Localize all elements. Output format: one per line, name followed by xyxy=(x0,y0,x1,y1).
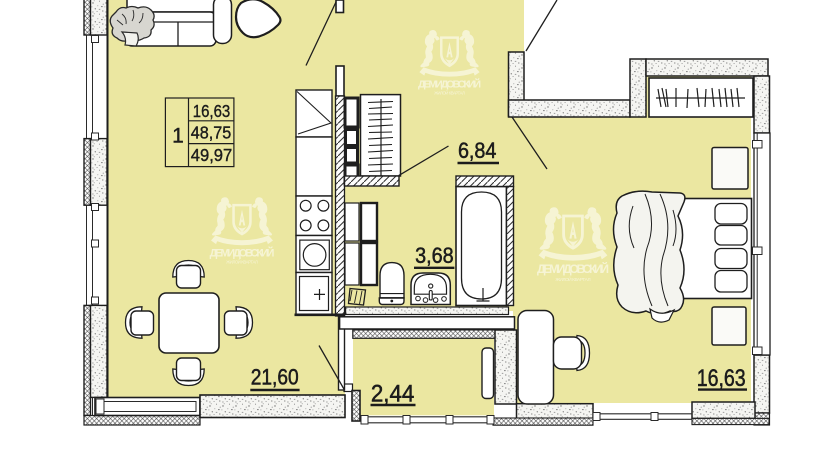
svg-text:ДЕМИДОВСКИЙ: ДЕМИДОВСКИЙ xyxy=(210,246,275,259)
svg-text:6,84: 6,84 xyxy=(458,138,497,163)
svg-text:16,63: 16,63 xyxy=(193,101,231,121)
svg-text:ДЕМИДОВСКИЙ: ДЕМИДОВСКИЙ xyxy=(418,78,481,91)
svg-text:ДЕМИДОВСКИЙ: ДЕМИДОВСКИЙ xyxy=(537,261,609,276)
svg-text:49,97: 49,97 xyxy=(191,145,233,165)
svg-text:ЖИЛОЙ КВАРТАЛ: ЖИЛОЙ КВАРТАЛ xyxy=(434,91,465,96)
svg-text:21,60: 21,60 xyxy=(251,365,299,390)
svg-text:3,68: 3,68 xyxy=(415,243,454,268)
svg-text:48,75: 48,75 xyxy=(191,123,232,143)
svg-text:16,63: 16,63 xyxy=(697,365,746,392)
svg-text:2,44: 2,44 xyxy=(371,381,415,408)
svg-text:ЖИЛОЙ КВАРТАЛ: ЖИЛОЙ КВАРТАЛ xyxy=(226,260,258,265)
svg-text:1: 1 xyxy=(172,125,184,148)
